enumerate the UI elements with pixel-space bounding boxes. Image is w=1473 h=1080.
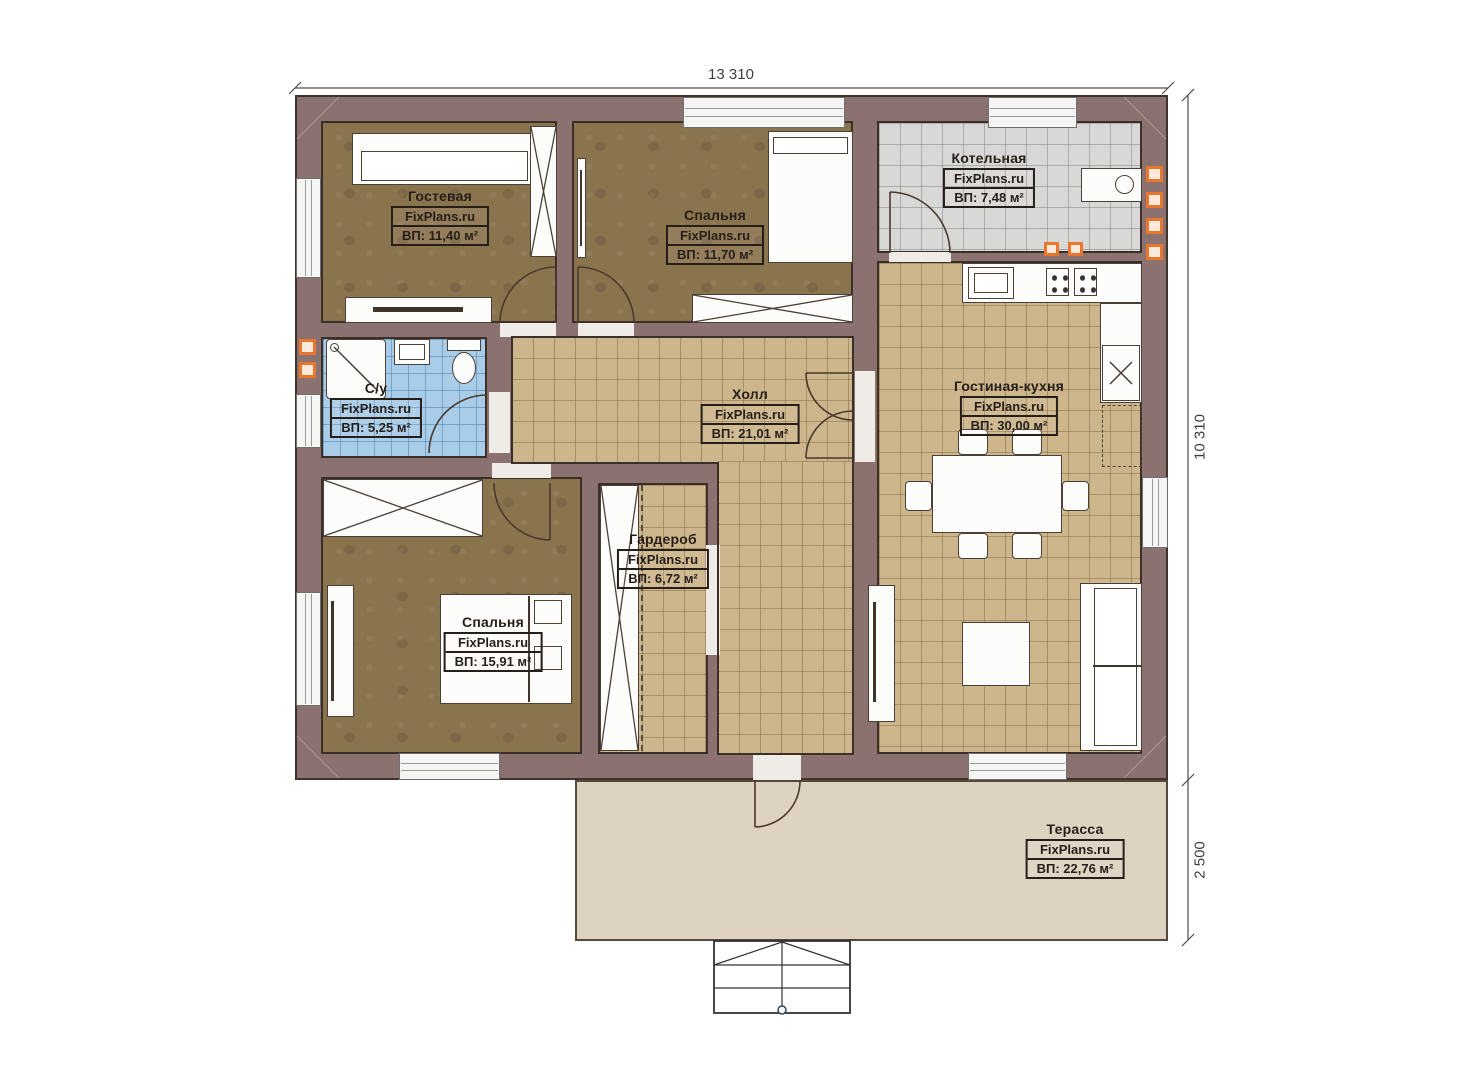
brand-watermark: FixPlans.ru	[1028, 841, 1123, 858]
fridge	[1102, 345, 1140, 401]
coffee-table	[962, 622, 1030, 686]
sofa	[352, 133, 537, 185]
room-label-bedroom-main: Спальня FixPlans.ru ВП: 15,91 м²	[444, 614, 543, 672]
room-area: ВП: 6,72 м²	[619, 568, 707, 587]
room-label-hall: Холл FixPlans.ru ВП: 21,01 м²	[701, 386, 800, 444]
room-name: Терасса	[1026, 821, 1125, 837]
vent-marker	[1146, 244, 1163, 260]
room-name: Спальня	[666, 207, 764, 223]
wardrobe-cabinet	[530, 126, 557, 257]
room-label-living-kitchen: Гостиная-кухня FixPlans.ru ВП: 30,00 м²	[954, 378, 1064, 436]
chair	[958, 533, 988, 559]
door-opening-bedroom-top	[578, 323, 634, 337]
room-label-guest: Гостевая FixPlans.ru ВП: 11,40 м²	[391, 188, 489, 246]
window-left-guest	[296, 178, 321, 278]
brand-watermark: FixPlans.ru	[619, 551, 707, 568]
room-label-wardrobe: Гардероб FixPlans.ru ВП: 6,72 м²	[617, 531, 709, 589]
dimension-right-height: 10 310	[1192, 414, 1209, 460]
brand-watermark: FixPlans.ru	[332, 400, 420, 417]
bed	[768, 131, 853, 263]
kitchen-sink	[968, 267, 1014, 299]
door-opening-boiler	[889, 252, 951, 262]
room-name: Гардероб	[617, 531, 709, 547]
room-label-terrace: Терасса FixPlans.ru ВП: 22,76 м²	[1026, 821, 1125, 879]
chair	[1062, 481, 1089, 511]
window-bottom-living	[968, 753, 1067, 780]
window-bottom-bedroom-main	[399, 753, 500, 780]
room-area: ВП: 22,76 м²	[1028, 858, 1123, 877]
tv-icon	[331, 601, 334, 701]
window-top-bedroom	[683, 97, 845, 128]
wardrobe-cabinet	[323, 479, 483, 537]
sofa	[1080, 583, 1142, 751]
room-label-bathroom: С/у FixPlans.ru ВП: 5,25 м²	[330, 380, 422, 438]
window-top-boiler	[988, 97, 1077, 128]
brand-watermark: FixPlans.ru	[962, 398, 1057, 415]
room-area: ВП: 30,00 м²	[962, 415, 1057, 434]
brand-watermark: FixPlans.ru	[945, 170, 1033, 187]
door-opening-guest	[500, 323, 556, 337]
brand-watermark: FixPlans.ru	[446, 634, 541, 651]
toilet-bowl	[452, 352, 476, 384]
wardrobe-dashed-line	[641, 485, 643, 751]
chair	[1012, 533, 1042, 559]
room-area: ВП: 11,70 м²	[668, 244, 762, 263]
room-area: ВП: 21,01 м²	[703, 423, 798, 442]
window-right-living	[1142, 477, 1168, 548]
entrance-steps	[714, 941, 850, 1014]
door-opening-bathroom	[489, 392, 510, 453]
shower-head-icon	[330, 343, 339, 352]
dimension-terrace-depth: 2 500	[1192, 841, 1209, 879]
room-name: С/у	[330, 380, 422, 396]
sofa-divider	[1093, 665, 1141, 667]
vent-marker	[299, 362, 316, 378]
room-hall-corridor-floor	[718, 461, 853, 754]
room-name: Спальня	[444, 614, 543, 630]
vent-marker	[1146, 192, 1163, 208]
vent-marker	[299, 339, 316, 355]
tv-icon	[873, 602, 876, 702]
washing-machine-door-icon	[1115, 175, 1134, 194]
room-area: ВП: 15,91 м²	[446, 651, 541, 670]
room-name: Холл	[701, 386, 800, 402]
vent-marker	[1146, 218, 1163, 234]
tv-icon	[580, 170, 582, 246]
door-opening-bedroom-main	[492, 463, 551, 478]
room-name: Гостевая	[391, 188, 489, 204]
room-name: Котельная	[943, 150, 1035, 166]
room-label-boiler: Котельная FixPlans.ru ВП: 7,48 м²	[943, 150, 1035, 208]
room-hall-floor	[512, 337, 853, 463]
room-area: ВП: 11,40 м²	[393, 225, 487, 244]
counter-dashed	[1102, 405, 1142, 467]
stove-burners	[1046, 268, 1069, 296]
dining-table	[932, 455, 1062, 533]
brand-watermark: FixPlans.ru	[703, 406, 798, 423]
wardrobe-cabinet	[692, 294, 853, 323]
sink	[394, 339, 430, 365]
tv-icon	[373, 307, 463, 312]
toilet-tank	[447, 339, 481, 351]
door-opening-entrance	[753, 754, 801, 780]
wardrobe-cabinet	[600, 485, 639, 751]
floor-plan-canvas: 13 310 10 310 2 500 Гостевая FixPlans.ru…	[0, 0, 1473, 1080]
door-opening-double	[855, 371, 875, 462]
room-name: Гостиная-кухня	[954, 378, 1064, 394]
window-left-bathroom	[296, 394, 321, 448]
room-area: ВП: 7,48 м²	[945, 187, 1033, 206]
vent-marker	[1068, 242, 1083, 256]
brand-watermark: FixPlans.ru	[393, 208, 487, 225]
room-label-bedroom-top: Спальня FixPlans.ru ВП: 11,70 м²	[666, 207, 764, 265]
vent-marker	[1044, 242, 1059, 256]
vent-marker	[1146, 166, 1163, 182]
room-area: ВП: 5,25 м²	[332, 417, 420, 436]
dimension-top-width: 13 310	[708, 66, 754, 83]
brand-watermark: FixPlans.ru	[668, 227, 762, 244]
window-left-bedroom-main	[296, 592, 321, 706]
chair	[905, 481, 932, 511]
stove-burners	[1074, 268, 1097, 296]
